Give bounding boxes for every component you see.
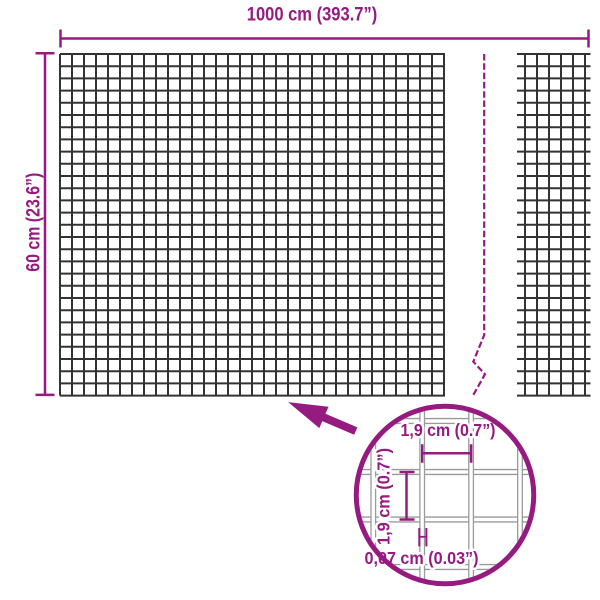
svg-text:1000 cm (393.7”): 1000 cm (393.7”) — [247, 4, 378, 26]
svg-text:1,9 cm (0.7”): 1,9 cm (0.7”) — [401, 420, 496, 440]
svg-text:60 cm (23.6”): 60 cm (23.6”) — [23, 173, 45, 272]
svg-text:1,9 cm (0.7”): 1,9 cm (0.7”) — [374, 448, 394, 545]
